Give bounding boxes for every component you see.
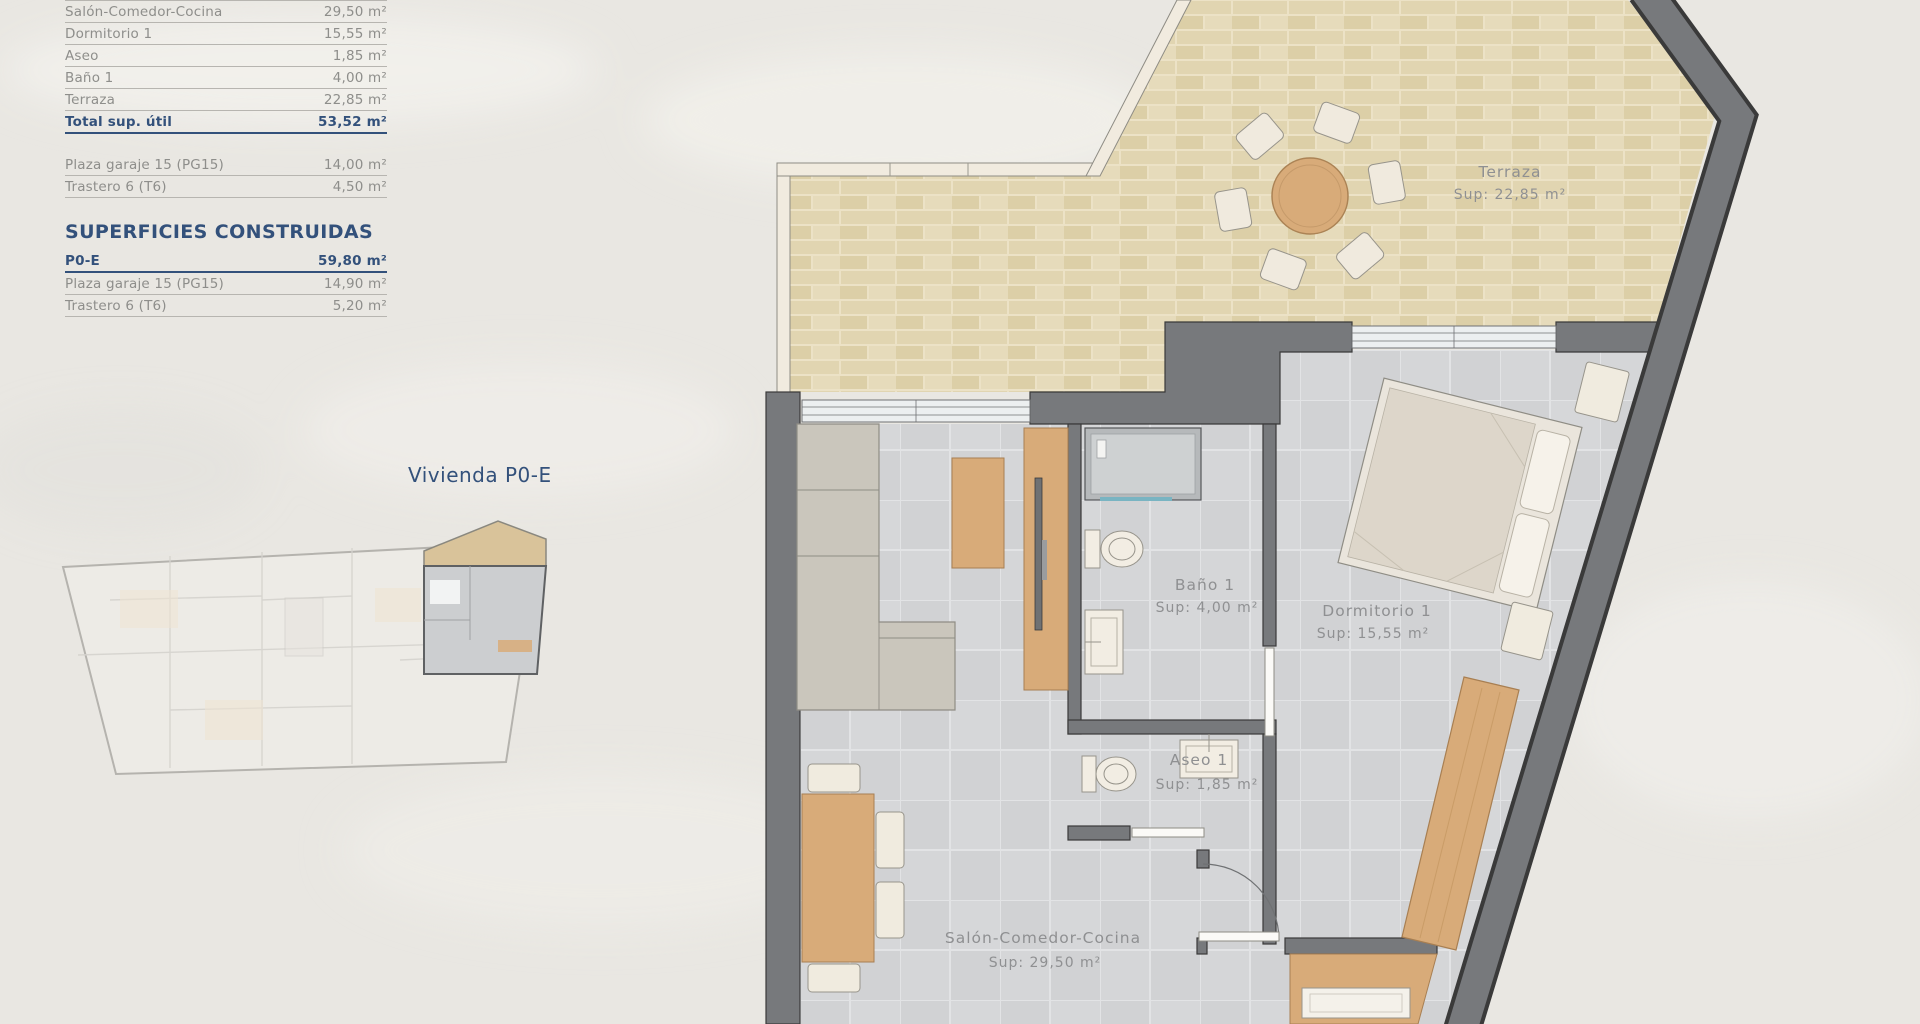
row-label: Baño 1 — [65, 70, 113, 86]
svg-text:Sup: 4,00 m²: Sup: 4,00 m² — [1156, 600, 1259, 616]
row-value: 14,90 m² — [324, 276, 387, 292]
tv-screen — [1035, 478, 1042, 630]
row-label: Salón-Comedor-Cocina — [65, 4, 223, 20]
row-value: 22,85 m² — [324, 92, 387, 108]
total-built-row: P0-E 59,80 m² — [65, 250, 387, 273]
useful-extras-table: Plaza garaje 15 (PG15) 14,00 m² Trastero… — [65, 154, 387, 198]
table-row: Salón-Comedor-Cocina 29,50 m² — [65, 1, 387, 23]
livingroom-label: Salón-Comedor-Cocina — [945, 929, 1141, 947]
row-value: 29,50 m² — [324, 4, 387, 20]
row-label: Plaza garaje 15 (PG15) — [65, 157, 224, 173]
aseo-sliding-door — [1132, 828, 1204, 837]
table-row: Plaza garaje 15 (PG15) 14,00 m² — [65, 154, 387, 176]
aseo-toilet — [1082, 756, 1136, 792]
table-row: Baño 1 4,00 m² — [65, 67, 387, 89]
svg-text:Sup: 15,55 m²: Sup: 15,55 m² — [1317, 626, 1430, 642]
row-label: Plaza garaje 15 (PG15) — [65, 276, 224, 292]
row-value: 4,50 m² — [333, 179, 387, 195]
row-label: P0-E — [65, 253, 100, 269]
useful-areas-table: Salón-Comedor-Cocina 29,50 m² Dormitorio… — [65, 0, 387, 134]
sink — [1085, 610, 1123, 674]
shower-glass — [1100, 497, 1172, 501]
table-row: Plaza garaje 15 (PG15) 14,90 m² — [65, 273, 387, 295]
row-value: 5,20 m² — [333, 298, 387, 314]
row-label: Trastero 6 (T6) — [65, 179, 167, 195]
unit-title: Vivienda P0-E — [408, 463, 552, 487]
row-label: Aseo — [65, 48, 99, 64]
row-value: 53,52 m² — [318, 114, 387, 130]
overview-highlighted-unit — [424, 521, 546, 674]
areas-panel: Salón-Comedor-Cocina 29,50 m² Dormitorio… — [65, 0, 387, 317]
table-row: Terraza 22,85 m² — [65, 89, 387, 111]
row-label: Total sup. útil — [65, 114, 172, 130]
row-value: 59,80 m² — [318, 253, 387, 269]
row-value: 14,00 m² — [324, 157, 387, 173]
bedroom-label: Dormitorio 1 — [1322, 602, 1431, 620]
coffee-table — [952, 458, 1004, 568]
appliance — [1302, 988, 1410, 1018]
row-value: 4,00 m² — [333, 70, 387, 86]
bedroom-door-leaf — [1265, 648, 1274, 736]
svg-text:Sup: 29,50 m²: Sup: 29,50 m² — [989, 955, 1102, 971]
living-window — [802, 400, 1030, 422]
entry-door-leaf — [1199, 932, 1279, 941]
table-row: Aseo 1,85 m² — [65, 45, 387, 67]
dining-table — [802, 794, 874, 962]
row-label: Terraza — [65, 92, 115, 108]
toilet — [1085, 530, 1143, 568]
table-row: Trastero 6 (T6) 5,20 m² — [65, 295, 387, 317]
built-areas-table: P0-E 59,80 m² Plaza garaje 15 (PG15) 14,… — [65, 250, 387, 317]
svg-text:Sup: 22,85 m²: Sup: 22,85 m² — [1454, 187, 1567, 203]
aseo-label: Aseo 1 — [1170, 751, 1229, 769]
bedroom-window — [1352, 326, 1556, 348]
svg-text:Sup: 1,85 m²: Sup: 1,85 m² — [1156, 777, 1259, 793]
bathroom-label: Baño 1 — [1175, 576, 1235, 594]
row-label: Trastero 6 (T6) — [65, 298, 167, 314]
table-row: Trastero 6 (T6) 4,50 m² — [65, 176, 387, 198]
built-areas-heading: SUPERFICIES CONSTRUIDAS — [65, 221, 387, 243]
row-label: Dormitorio 1 — [65, 26, 152, 42]
terrace-label: Terraza — [1478, 163, 1542, 181]
row-value: 15,55 m² — [324, 26, 387, 42]
row-value: 1,85 m² — [333, 48, 387, 64]
total-useful-row: Total sup. útil 53,52 m² — [65, 111, 387, 134]
table-row: Dormitorio 1 15,55 m² — [65, 23, 387, 45]
overview-mini-plan — [63, 521, 546, 774]
kitchen-nook — [1290, 954, 1437, 1024]
